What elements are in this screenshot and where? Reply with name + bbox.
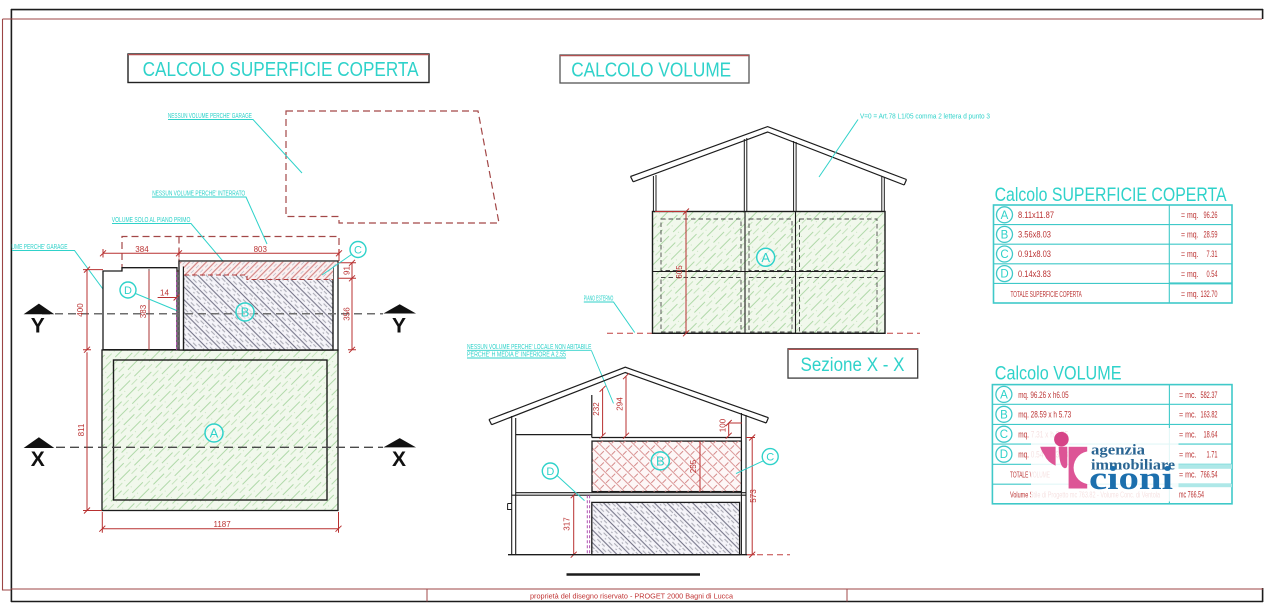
svg-text:Y: Y <box>392 315 406 338</box>
svg-text:= mq.: = mq. <box>1181 249 1199 259</box>
svg-text:V=0 = Art.78 L1/05 comma 2 let: V=0 = Art.78 L1/05 comma 2 lettera d pun… <box>860 111 990 120</box>
svg-text:Calcolo VOLUME: Calcolo VOLUME <box>995 363 1122 385</box>
svg-text:B: B <box>1001 229 1009 241</box>
svg-text:C: C <box>1000 429 1008 441</box>
svg-text:294: 294 <box>616 397 625 411</box>
svg-text:D: D <box>1000 449 1008 461</box>
svg-text:CALCOLO VOLUME: CALCOLO VOLUME <box>571 59 731 81</box>
svg-text:C: C <box>766 452 774 464</box>
svg-text:0.14x3.83: 0.14x3.83 <box>1018 269 1051 279</box>
svg-text:mc 766.54: mc 766.54 <box>1179 490 1204 500</box>
svg-text:A: A <box>761 250 770 265</box>
svg-text:7.31: 7.31 <box>1207 249 1218 259</box>
svg-text:1.71: 1.71 <box>1207 450 1218 460</box>
svg-text:PIANO ESTERNO: PIANO ESTERNO <box>584 294 614 303</box>
svg-text:132.70: 132.70 <box>1201 289 1218 299</box>
svg-text:mq. 96.26 x h6.05: mq. 96.26 x h6.05 <box>1018 390 1068 400</box>
svg-text:3.56x8.03: 3.56x8.03 <box>1018 230 1051 240</box>
svg-text:A: A <box>210 426 219 441</box>
svg-text:317: 317 <box>563 517 572 531</box>
svg-text:811: 811 <box>77 423 86 436</box>
svg-text:B: B <box>241 305 250 320</box>
svg-text:VOLUME SOLO AL PIANO PRIMO: VOLUME SOLO AL PIANO PRIMO <box>112 215 191 224</box>
svg-text:= mq.: = mq. <box>1181 230 1199 240</box>
svg-text:mq. 28.59 x h 5.73: mq. 28.59 x h 5.73 <box>1018 410 1071 420</box>
svg-text:CALCOLO SUPERFICIE COPERTA: CALCOLO SUPERFICIE COPERTA <box>143 59 420 81</box>
svg-text:X: X <box>31 448 45 471</box>
svg-text:96.26: 96.26 <box>1204 210 1218 220</box>
svg-text:100: 100 <box>719 418 728 432</box>
svg-text:28.59: 28.59 <box>1204 230 1218 240</box>
svg-text:1187: 1187 <box>214 520 232 529</box>
svg-text:Sezione X - X: Sezione X - X <box>801 354 905 376</box>
svg-text:NESSUN VOLUME PERCHE' GARAGE: NESSUN VOLUME PERCHE' GARAGE <box>168 111 252 120</box>
svg-text:proprietà del disegno riservat: proprietà del disegno riservato - PROGET… <box>530 592 733 601</box>
svg-text:X: X <box>392 448 406 471</box>
svg-text:163.82: 163.82 <box>1201 410 1218 420</box>
svg-text:573: 573 <box>749 489 758 503</box>
svg-text:= mq.: = mq. <box>1181 269 1199 279</box>
svg-text:400: 400 <box>76 303 85 317</box>
svg-text:Calcolo SUPERFICIE COPERTA: Calcolo SUPERFICIE COPERTA <box>995 184 1227 206</box>
svg-text:766.54: 766.54 <box>1201 470 1218 480</box>
svg-text:D: D <box>124 285 132 297</box>
svg-text:803: 803 <box>254 245 268 254</box>
svg-text:C: C <box>354 245 362 257</box>
svg-text:= mc.: = mc. <box>1179 450 1197 460</box>
svg-text:A: A <box>1001 210 1009 222</box>
svg-text:TOTALE SUPERFICIE COPERTA: TOTALE SUPERFICIE COPERTA <box>1011 290 1083 299</box>
svg-text:= mc.: = mc. <box>1179 390 1197 400</box>
svg-text:= mq.: = mq. <box>1181 289 1199 299</box>
svg-text:A: A <box>1000 389 1008 401</box>
svg-text:Y: Y <box>31 315 45 338</box>
svg-text:0.91x8.03: 0.91x8.03 <box>1018 249 1051 259</box>
svg-text:B: B <box>1000 409 1008 421</box>
svg-text:91: 91 <box>343 266 352 275</box>
svg-text:= mc.: = mc. <box>1179 410 1197 420</box>
svg-text:14: 14 <box>160 288 169 297</box>
svg-text:18.64: 18.64 <box>1204 430 1218 440</box>
svg-text:PERCHE' H MEDIA E' INFERIORE A: PERCHE' H MEDIA E' INFERIORE A 2.55 <box>467 350 566 359</box>
svg-text:D: D <box>546 466 554 478</box>
svg-text:356: 356 <box>343 307 352 321</box>
svg-text:605: 605 <box>675 265 684 279</box>
svg-text:582.37: 582.37 <box>1201 390 1218 400</box>
svg-text:D: D <box>1000 269 1008 281</box>
svg-text:NESSUN VOLUME PERCHE' INTERRAT: NESSUN VOLUME PERCHE' INTERRATO <box>152 188 245 197</box>
svg-text:384: 384 <box>135 245 149 254</box>
svg-text:cioni: cioni <box>1089 461 1173 497</box>
svg-text:= mc.: = mc. <box>1179 470 1197 480</box>
svg-text:383: 383 <box>139 304 148 318</box>
svg-text:B: B <box>656 453 665 468</box>
svg-text:agenzia: agenzia <box>1091 443 1146 459</box>
svg-text:C: C <box>1000 249 1008 261</box>
svg-text:UME PERCHE' GARAGE: UME PERCHE' GARAGE <box>12 242 68 251</box>
svg-text:8.11x11.87: 8.11x11.87 <box>1018 210 1054 220</box>
svg-text:255: 255 <box>689 459 698 473</box>
svg-text:= mq.: = mq. <box>1181 210 1199 220</box>
svg-text:0.54: 0.54 <box>1207 269 1218 279</box>
svg-text:= mc.: = mc. <box>1179 430 1197 440</box>
svg-text:232: 232 <box>592 402 601 416</box>
